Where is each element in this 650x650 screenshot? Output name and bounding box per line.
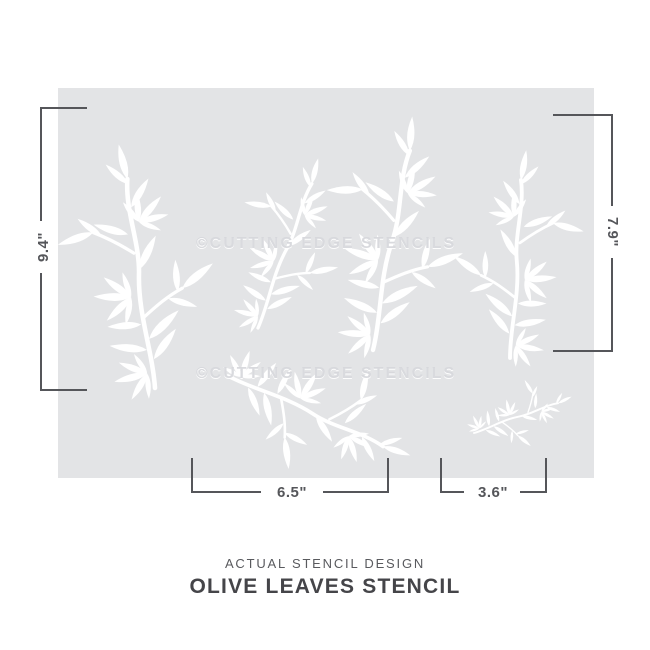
olive-leaves-design bbox=[58, 88, 594, 478]
dimension-label-bottom-left: 6.5" bbox=[262, 484, 322, 502]
caption-subtitle: ACTUAL STENCIL DESIGN bbox=[0, 556, 650, 571]
caption-title: OLIVE LEAVES STENCIL bbox=[0, 575, 650, 599]
dimension-label-right-height: 7.9" bbox=[603, 202, 621, 262]
dimension-label-bottom-right: 3.6" bbox=[463, 484, 523, 502]
caption-block: ACTUAL STENCIL DESIGN OLIVE LEAVES STENC… bbox=[0, 556, 650, 599]
dimension-label-left-height: 9.4" bbox=[35, 217, 53, 277]
stencil-sheet: ©CUTTING EDGE STENCILS ©CUTTING EDGE STE… bbox=[58, 88, 594, 478]
product-image: ©CUTTING EDGE STENCILS ©CUTTING EDGE STE… bbox=[0, 0, 650, 650]
